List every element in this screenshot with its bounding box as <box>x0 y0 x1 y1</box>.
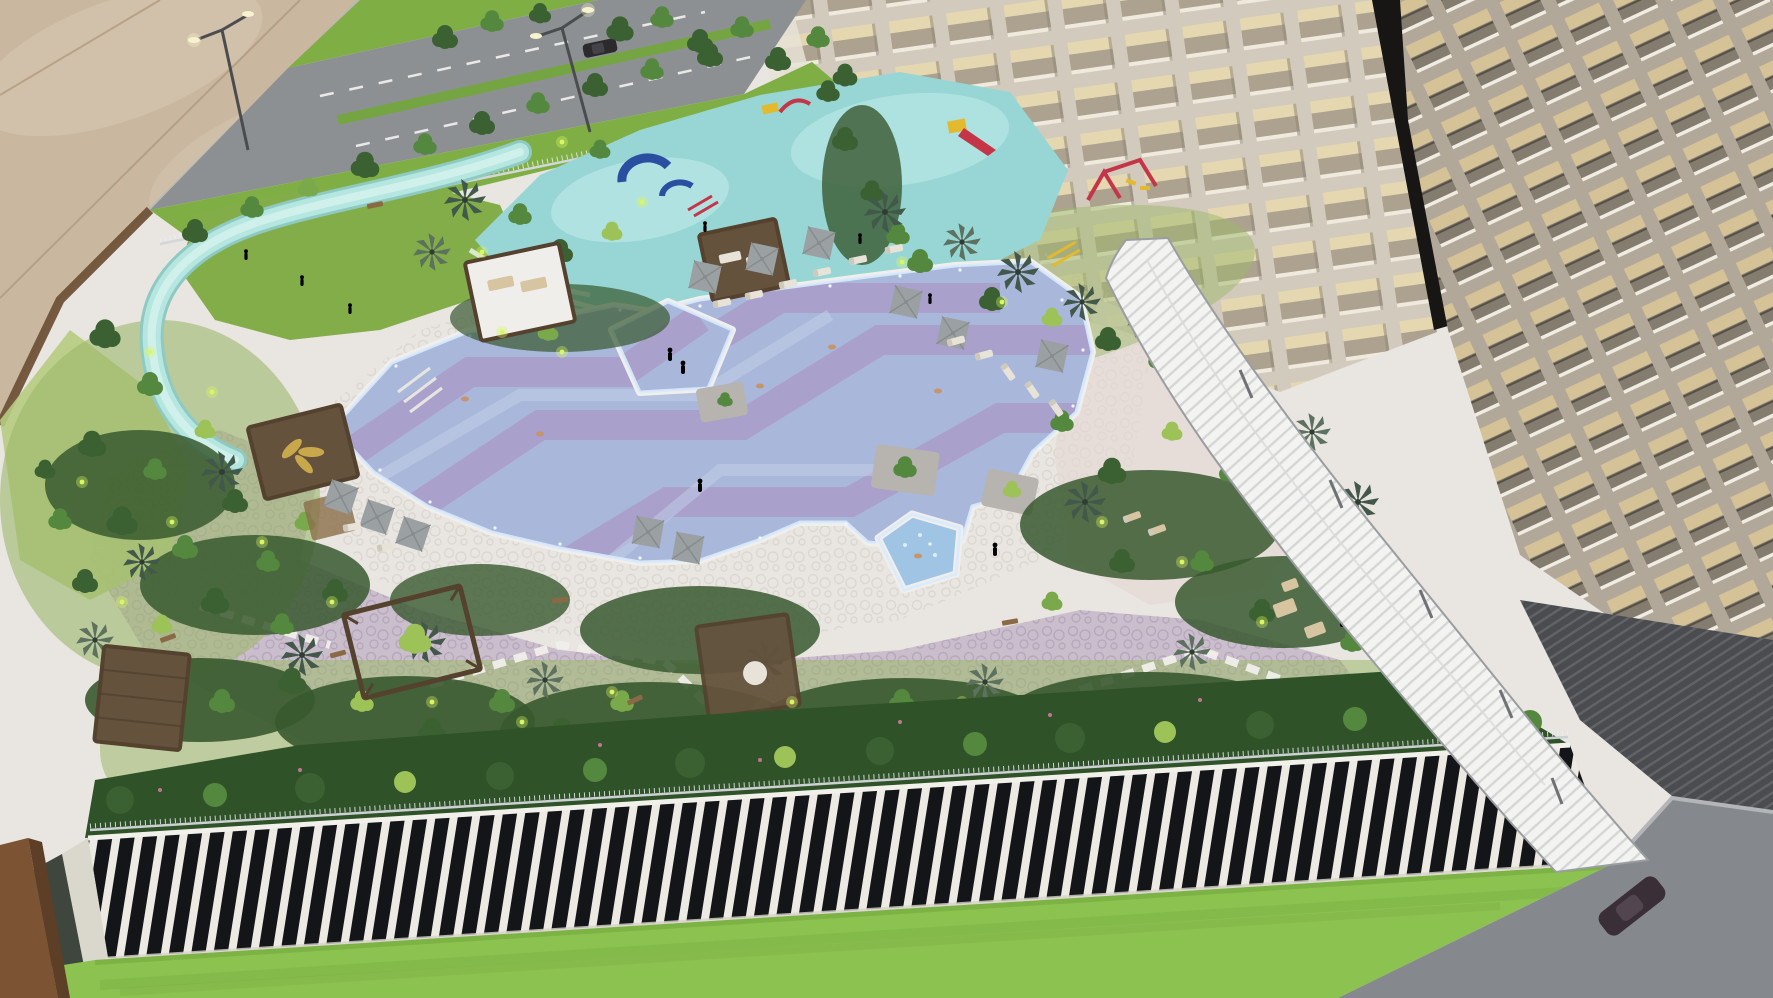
parasol <box>802 226 835 259</box>
architectural-model-photo <box>0 0 1773 998</box>
figure <box>703 221 707 232</box>
figure <box>698 479 703 492</box>
parasol <box>889 285 922 318</box>
garden-pergola <box>696 614 800 718</box>
figure <box>993 543 998 556</box>
figure <box>300 275 304 286</box>
parasol <box>672 532 704 564</box>
model-scene <box>0 0 1773 998</box>
figure <box>244 249 248 260</box>
figure <box>928 293 932 304</box>
swing-seat <box>1140 186 1150 190</box>
parasol <box>688 260 721 293</box>
figure <box>858 233 862 244</box>
gazebo <box>94 646 190 750</box>
parasol <box>632 516 664 548</box>
parasol <box>1035 339 1068 372</box>
figure <box>348 303 352 314</box>
parasol <box>745 242 778 275</box>
figure <box>681 361 686 374</box>
figure <box>668 348 673 361</box>
